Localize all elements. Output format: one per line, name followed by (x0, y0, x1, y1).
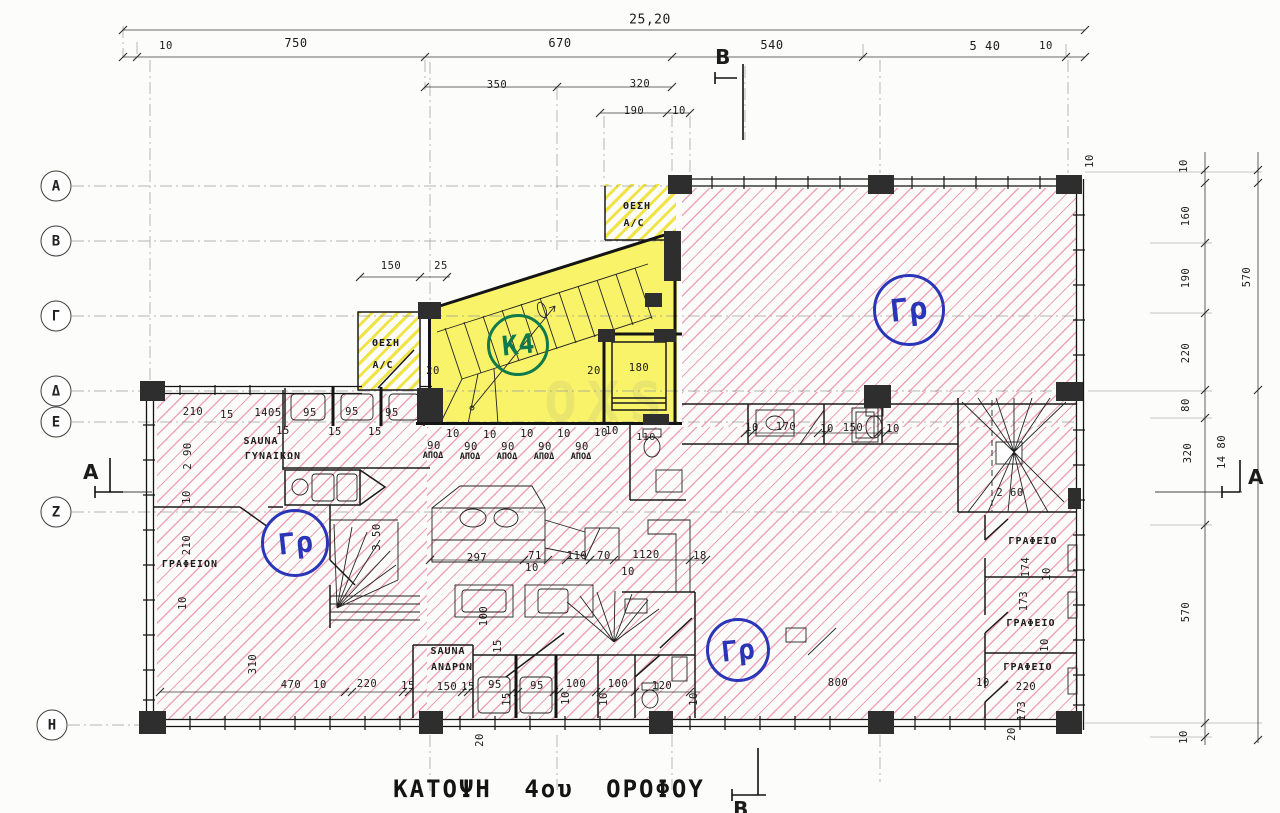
dimension-label: 10 (1042, 567, 1053, 581)
dimension-label: 220 (1181, 343, 1192, 363)
dimension-label: 150 (381, 261, 401, 272)
dimension-label: 110 (636, 433, 656, 443)
dimension-label: 570 (1242, 267, 1253, 287)
dimension-label: 10 (621, 567, 635, 578)
dimension-label: 20 (426, 366, 440, 377)
dimension-label: 95 (385, 408, 399, 419)
dimension-label: 15 (461, 682, 475, 693)
dimension-label: 14 80 (1217, 435, 1228, 469)
dimension-label: 100 (566, 679, 586, 690)
dimension-label: 95 (530, 681, 544, 692)
room-label: A/C (623, 219, 644, 229)
room-label: ΓΥΝΑΙΚΩΝ (245, 452, 301, 462)
dimension-label: 10 (1085, 154, 1096, 168)
dimension-label: 20 (587, 366, 601, 377)
dimension-label: 110 (567, 551, 587, 562)
office-circle-label: Γρ (261, 509, 329, 577)
dimension-label: 95 (345, 407, 359, 418)
dimension-label: 70 (597, 551, 611, 562)
room-label: ΑΠΟΔ (497, 453, 517, 462)
room-label: ΓΡΑΦΕΙΟ (1006, 619, 1055, 629)
section-marker-label: Α (83, 462, 99, 482)
dimension-label: 10 (1179, 159, 1190, 173)
dimension-label: 80 (1181, 398, 1192, 412)
dimension-label: 15 (502, 692, 513, 706)
grid-axis-bubble-Α: Α (41, 171, 72, 202)
dimension-label: 350 (487, 80, 507, 91)
dimension-label: 90 (501, 442, 515, 453)
unit-circle-k4: Κ4 (487, 314, 549, 376)
dimension-label: 25,20 (629, 14, 671, 27)
dimension-label: 2 90 (183, 442, 194, 469)
grid-axis-bubble-Ζ: Ζ (41, 497, 72, 528)
dimension-label: 15 (276, 426, 290, 437)
room-label: ΑΠΟΔ (460, 453, 480, 462)
dimension-label: 15 (493, 639, 504, 653)
grid-axis-bubble-Η: Η (37, 710, 68, 741)
dimension-label: 670 (548, 37, 571, 49)
dimension-label: 10 (1039, 41, 1053, 52)
dimension-label: 2 60 (996, 488, 1023, 499)
dimension-label: 170 (776, 422, 796, 433)
dimension-label: 10 (557, 429, 571, 440)
dimension-label: 10 (446, 429, 460, 440)
room-label: A/C (372, 361, 393, 371)
dimension-label: 190 (624, 106, 644, 117)
dimension-label: 174 (1021, 557, 1032, 577)
dimension-label: 100 (479, 606, 490, 626)
dimension-label: 750 (284, 37, 307, 49)
dimension-label: 190 (1181, 268, 1192, 288)
section-marker-label: Β (733, 799, 749, 813)
room-label: ΑΠΟΔ (423, 452, 443, 461)
dimension-label: 10 (520, 429, 534, 440)
dimension-label: 320 (630, 79, 650, 90)
grid-axis-bubble-Β: Β (41, 226, 72, 257)
dimension-label: 90 (538, 442, 552, 453)
section-marker-label: Β (715, 47, 731, 67)
dimension-label: 25 (434, 261, 448, 272)
room-label: ΑΠΟΔ (571, 453, 591, 462)
dimension-label: 310 (248, 654, 259, 674)
room-label: ΓΡΑΦΕΙΟΝ (162, 560, 218, 570)
dimension-label: 10 (313, 680, 327, 691)
dimension-label: 10 (525, 563, 539, 574)
dimension-label: 160 (1181, 206, 1192, 226)
room-label: SAUNA (243, 437, 278, 447)
dimension-label: 3 50 (372, 523, 383, 550)
dimension-label: 10 (1040, 638, 1051, 652)
grid-axis-bubble-Ε: Ε (41, 407, 72, 438)
dimension-label: 1120 (632, 550, 659, 561)
office-circle-label: Γρ (706, 618, 770, 682)
dimension-label: 1405 (254, 408, 281, 419)
dimension-label: 90 (464, 442, 478, 453)
dimension-label: 210 (183, 407, 203, 418)
dimension-label: 220 (357, 679, 377, 690)
room-label: SAUNA (430, 647, 465, 657)
dimension-label: 150 (843, 423, 863, 434)
dimension-label: 120 (652, 681, 672, 692)
dimension-label: 10 (605, 426, 619, 437)
dimension-label: 10 (561, 691, 572, 705)
dimension-label: 297 (467, 553, 487, 564)
dimension-label: 10 (976, 678, 990, 689)
dimension-label: 210 (182, 535, 193, 555)
dimension-label: 95 (488, 680, 502, 691)
dimension-label: 10 (159, 41, 173, 52)
dimension-label: 10 (886, 424, 900, 435)
grid-axis-bubble-Γ: Γ (41, 301, 72, 332)
dimension-label: 570 (1181, 602, 1192, 622)
dimension-label: 10 (178, 596, 189, 610)
dimension-label: 800 (828, 678, 848, 689)
dimension-label: 10 (820, 424, 834, 435)
dimension-label: 540 (760, 39, 783, 51)
dimension-label: 71 (528, 551, 542, 562)
office-circle-label: Γρ (873, 274, 945, 346)
grid-axis-bubble-Δ: Δ (41, 376, 72, 407)
dimension-label: 180 (629, 363, 649, 374)
dimension-label: 15 (328, 427, 342, 438)
dimension-label: 10 (689, 692, 700, 706)
dimension-label: 320 (1183, 443, 1194, 463)
room-label: ΑΠΟΔ (534, 453, 554, 462)
dimension-label: 10 (483, 430, 497, 441)
room-label: ΓΡΑΦΕΙΟ (1008, 537, 1057, 547)
dimension-label: 10 (672, 106, 686, 117)
dimension-label: 95 (303, 408, 317, 419)
dimension-label: 90 (575, 442, 589, 453)
dimension-label: 173 (1017, 701, 1028, 721)
room-label: ΘΕΣΗ (623, 202, 651, 212)
dimension-label: 18 (693, 551, 707, 562)
room-label: ΑΝΔΡΩΝ (431, 663, 473, 673)
dimension-label: 10 (745, 423, 759, 434)
room-label: ΘΕΣΗ (372, 339, 400, 349)
dimension-label: 20 (475, 733, 486, 747)
dimension-label: 10 (599, 692, 610, 706)
dimension-label: 10 (1179, 730, 1190, 744)
room-label: ΓΡΑΦΕΙΟ (1003, 663, 1052, 673)
drawing-title: ΚΑΤΟΨΗ 4ου ΟΡΟΦΟΥ (393, 775, 705, 803)
dimension-label: 15 (368, 427, 382, 438)
section-marker-label: Α (1248, 467, 1264, 487)
dimension-label: 10 (182, 490, 193, 504)
dimension-label: 20 (1007, 727, 1018, 741)
dimension-label: 15 (220, 410, 234, 421)
dimension-label: 173 (1019, 591, 1030, 611)
dimension-label: 5 40 (970, 40, 1001, 52)
dimension-label: 100 (608, 679, 628, 690)
dimension-label: 150 (437, 682, 457, 693)
dimension-label: 90 (427, 441, 441, 452)
dimension-label: 470 (281, 680, 301, 691)
dimension-label: 220 (1016, 682, 1036, 693)
dimension-label: 15 (401, 681, 415, 692)
floorplan-canvas: OXS (0, 0, 1280, 813)
